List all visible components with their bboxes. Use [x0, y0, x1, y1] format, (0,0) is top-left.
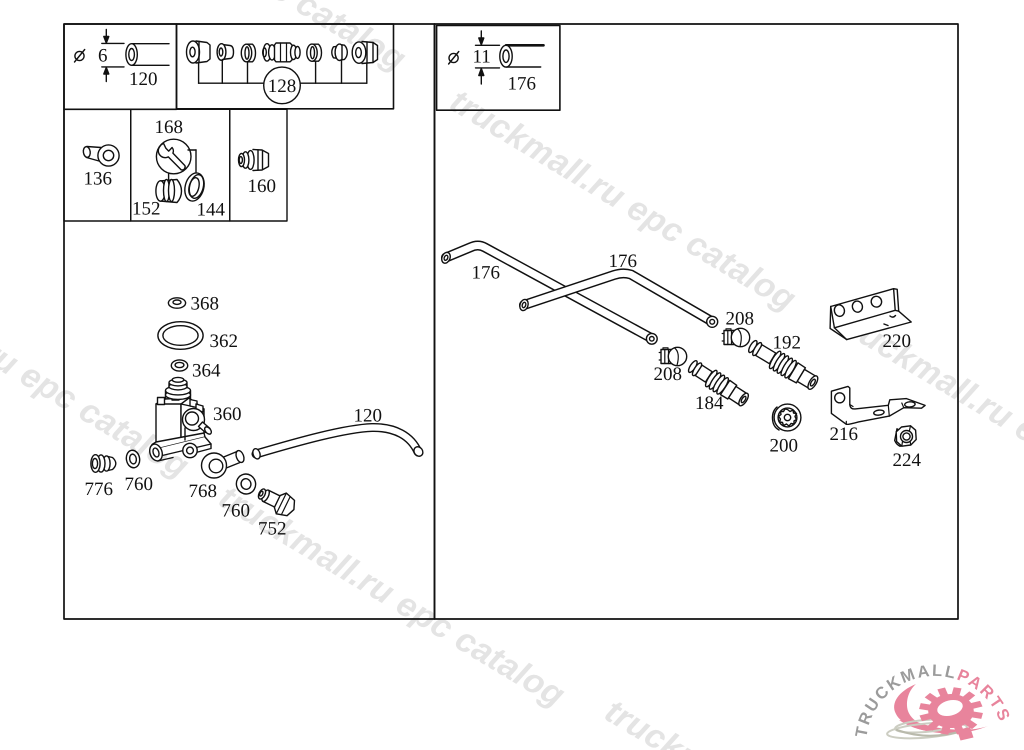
svg-text:364: 364: [192, 361, 221, 382]
svg-text:360: 360: [213, 404, 242, 425]
svg-text:208: 208: [726, 309, 755, 330]
svg-text:11: 11: [473, 47, 491, 68]
svg-text:216: 216: [830, 424, 859, 445]
svg-text:220: 220: [883, 331, 912, 352]
svg-text:128: 128: [268, 76, 297, 97]
svg-text:368: 368: [191, 294, 220, 315]
svg-text:200: 200: [770, 436, 799, 457]
svg-text:176: 176: [472, 263, 501, 284]
svg-text:120: 120: [354, 406, 383, 427]
svg-text:224: 224: [893, 450, 922, 471]
svg-text:768: 768: [189, 481, 218, 502]
svg-text:760: 760: [222, 501, 251, 522]
svg-text:176: 176: [609, 251, 638, 272]
svg-text:362: 362: [210, 331, 239, 352]
svg-text:184: 184: [695, 393, 724, 414]
svg-text:776: 776: [85, 479, 114, 500]
svg-text:168: 168: [155, 117, 184, 138]
svg-text:176: 176: [508, 74, 537, 95]
svg-text:208: 208: [654, 364, 683, 385]
svg-text:152: 152: [132, 199, 161, 220]
svg-text:160: 160: [248, 176, 277, 197]
svg-text:760: 760: [125, 474, 154, 495]
svg-text:136: 136: [84, 169, 113, 190]
svg-text:144: 144: [197, 200, 226, 221]
svg-text:6: 6: [98, 46, 108, 67]
svg-text:120: 120: [129, 69, 158, 90]
svg-text:752: 752: [258, 519, 287, 540]
svg-text:192: 192: [773, 333, 802, 354]
